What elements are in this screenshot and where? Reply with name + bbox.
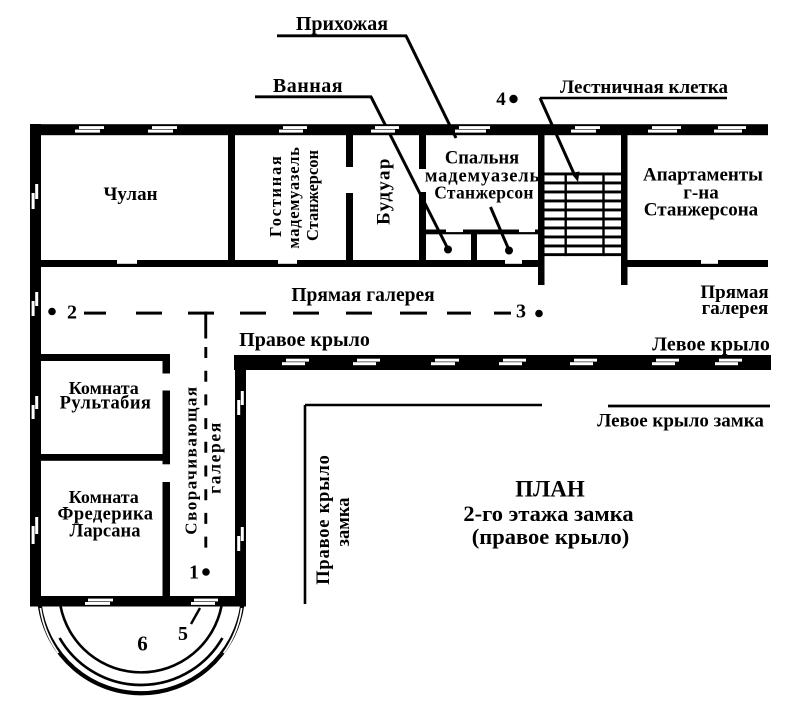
svg-text:Сворачивающая: Сворачивающая — [182, 385, 201, 534]
svg-text:Прихожая: Прихожая — [296, 13, 388, 35]
svg-text:Правое крыло: Правое крыло — [314, 454, 334, 585]
svg-text:Станжерсона: Станжерсона — [644, 200, 759, 221]
svg-text:3: 3 — [516, 301, 526, 323]
svg-text:Ларсана: Ларсана — [70, 522, 141, 542]
svg-text:мадемуазель: мадемуазель — [284, 146, 303, 248]
svg-text:Левое крыло: Левое крыло — [652, 334, 770, 356]
svg-text:галерея: галерея — [702, 298, 769, 319]
svg-text:(правое крыло): (правое крыло) — [472, 524, 630, 549]
svg-text:Гостиная: Гостиная — [266, 154, 285, 237]
svg-text:Будуар: Будуар — [374, 157, 395, 225]
svg-text:Спальня: Спальня — [445, 149, 519, 169]
svg-text:6: 6 — [137, 632, 148, 656]
svg-text:Левое крыло замка: Левое крыло замка — [597, 411, 764, 432]
svg-text:Правое крыло: Правое крыло — [239, 329, 370, 351]
svg-text:Ванная: Ванная — [273, 75, 343, 97]
svg-text:Чулан: Чулан — [103, 184, 157, 205]
svg-text:Прямая галерея: Прямая галерея — [291, 285, 435, 306]
svg-text:2-го этажа замка: 2-го этажа замка — [463, 501, 633, 526]
svg-text:ПЛАН: ПЛАН — [515, 477, 585, 502]
svg-text:Станжерсон: Станжерсон — [303, 149, 322, 241]
svg-text:4: 4 — [496, 89, 506, 110]
svg-text:замка: замка — [334, 498, 354, 547]
svg-text:2: 2 — [67, 302, 77, 324]
svg-text:5: 5 — [178, 623, 188, 645]
svg-text:Лестничная клетка: Лестничная клетка — [560, 77, 729, 98]
svg-text:Рультабия: Рультабия — [60, 394, 152, 414]
svg-text:галерея: галерея — [205, 421, 225, 494]
svg-text:1: 1 — [189, 562, 199, 584]
svg-text:Станжерсон: Станжерсон — [434, 183, 534, 203]
